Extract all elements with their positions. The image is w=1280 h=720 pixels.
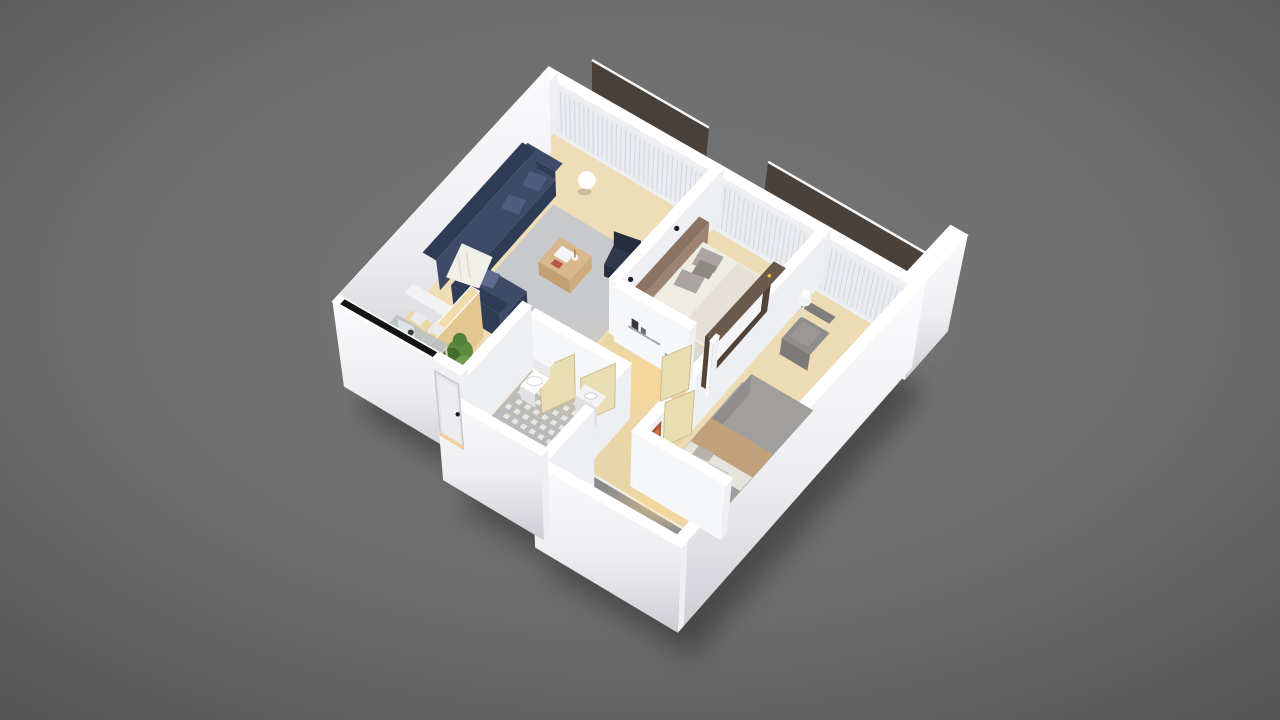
render-stage [0, 0, 1280, 720]
wall-sconce [674, 226, 679, 231]
door-handle [455, 412, 459, 416]
sphere-lamp [578, 171, 596, 189]
wall-sconce [628, 277, 633, 282]
table-lamp [802, 290, 810, 298]
floorplan-3d-render [0, 0, 1280, 720]
